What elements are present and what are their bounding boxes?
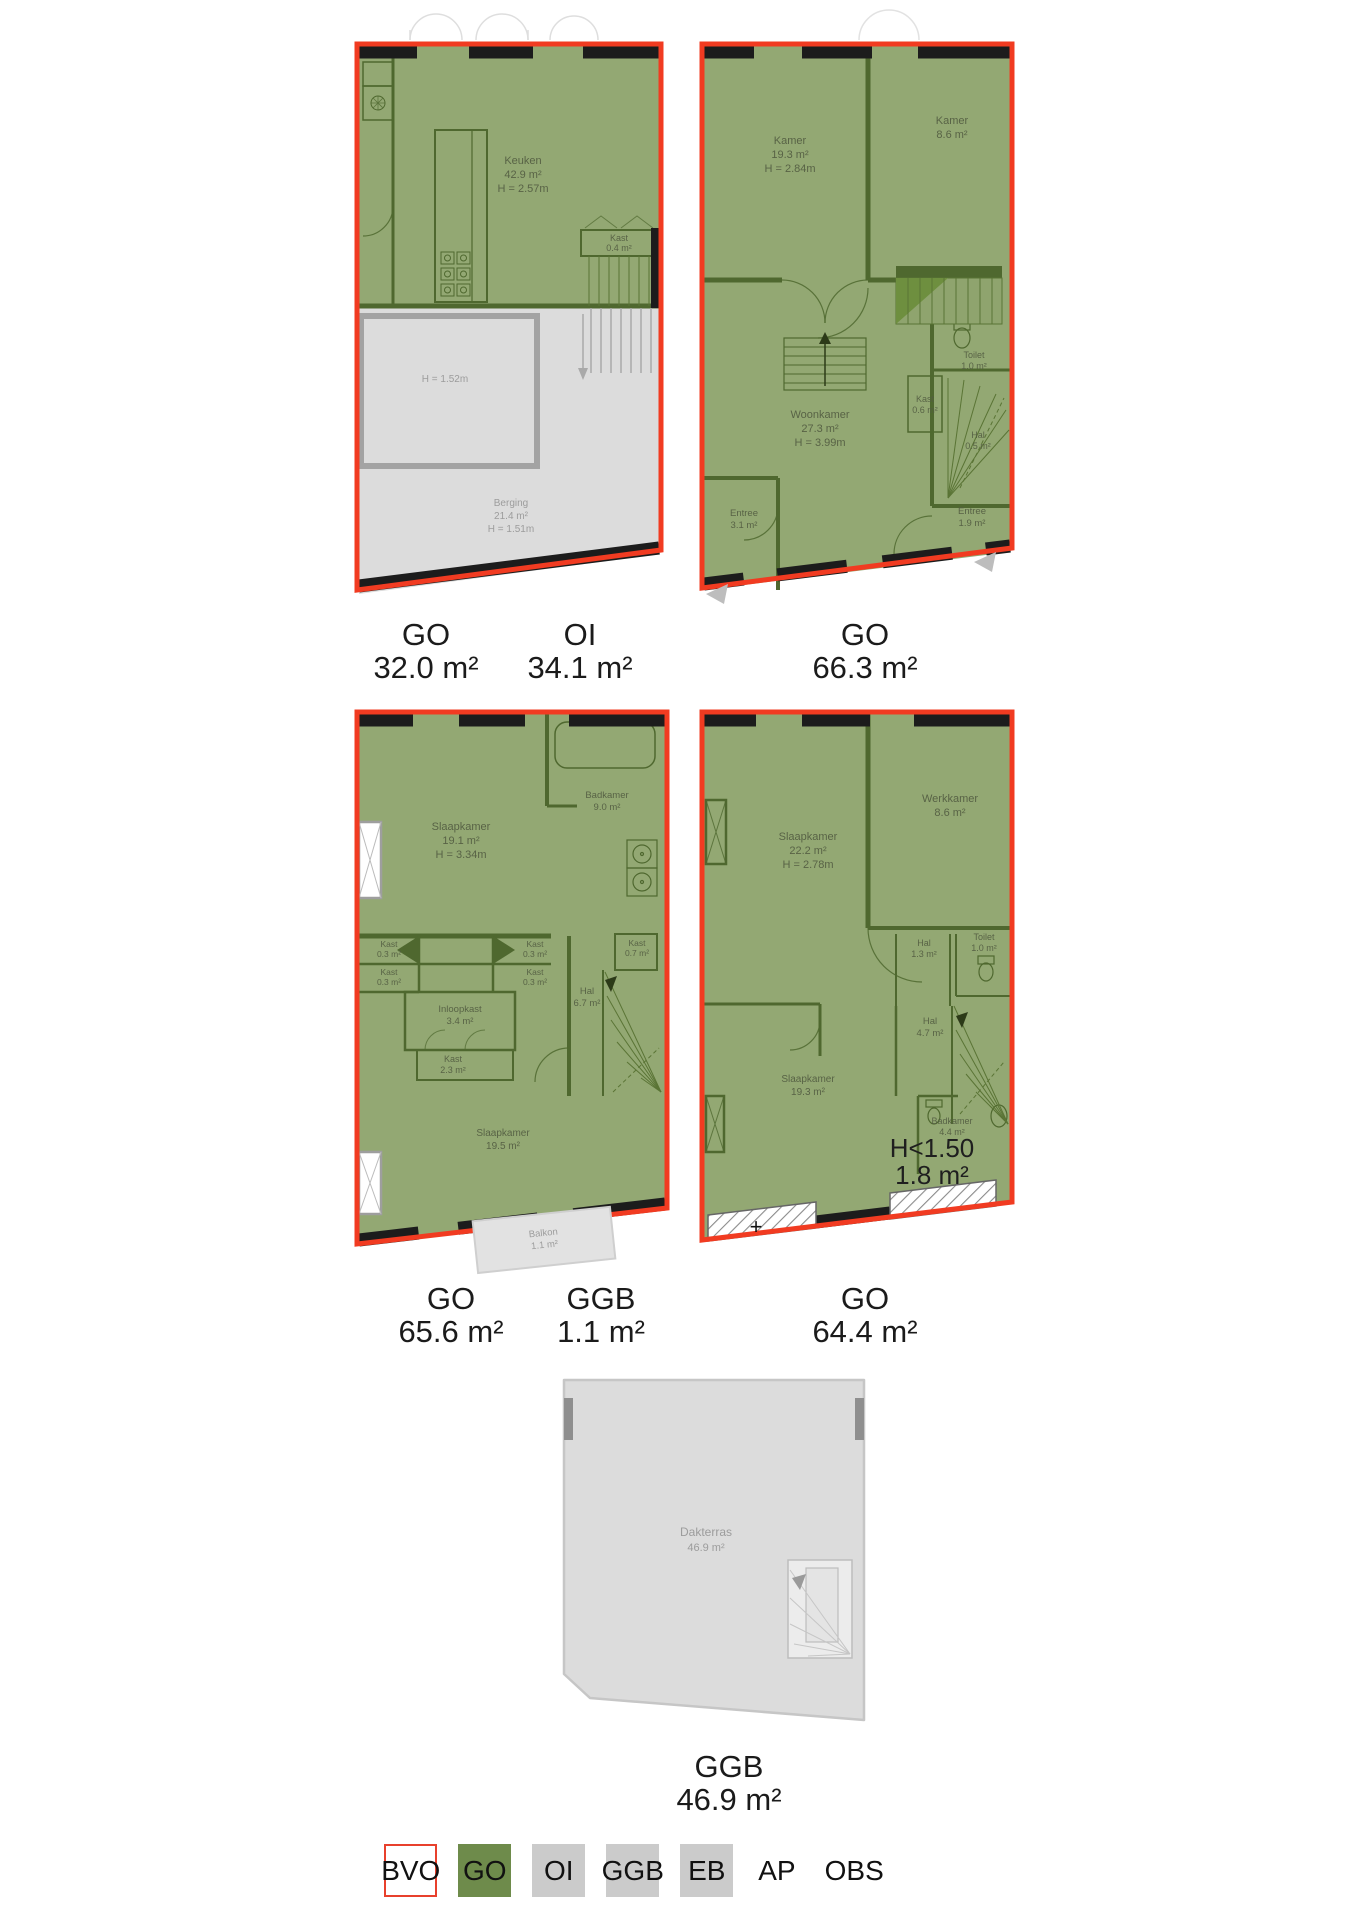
room-label: Hal xyxy=(580,986,594,997)
room-height: H = 3.34m xyxy=(435,849,486,861)
legend-label: OI xyxy=(544,1855,574,1887)
room-label: Dakterras xyxy=(680,1525,732,1539)
room-label: Woonkamer xyxy=(790,409,849,421)
caption-code: OI xyxy=(505,618,655,651)
room-area: 19.3 m² xyxy=(791,1087,826,1098)
caption-go-66: GO 66.3 m² xyxy=(790,618,940,685)
room-label: Slaapkamer xyxy=(779,831,838,843)
room-label: Badkamer xyxy=(931,1116,972,1126)
caption-go-64: GO 64.4 m² xyxy=(790,1282,940,1349)
room-area: 21.4 m² xyxy=(494,511,529,522)
room-label: Hal xyxy=(917,938,931,948)
caption-area: 46.9 m² xyxy=(654,1783,804,1817)
room-label: Kast xyxy=(916,394,935,404)
room-label: Badkamer xyxy=(585,790,628,801)
room-area: 1.9 m² xyxy=(959,518,986,529)
caption-oi-34: OI 34.1 m² xyxy=(505,618,655,685)
room-area: 9.0 m² xyxy=(594,802,621,813)
room-area: 27.3 m² xyxy=(801,423,839,435)
floorplan-sheet: { "colors": { "plan_green": "#93A873", "… xyxy=(0,0,1358,1920)
wall-block xyxy=(855,1398,864,1440)
room-area: 2.3 m² xyxy=(440,1065,466,1075)
room-label: Kast xyxy=(628,938,646,948)
room-label: Kast xyxy=(444,1054,463,1064)
legend-swatch-eb: EB xyxy=(680,1844,733,1897)
legend-swatch-ggb: GGB xyxy=(606,1844,659,1897)
floorplan-5: Dakterras 46.9 m² xyxy=(556,1372,874,1754)
floorplan-1: Keuken 42.9 m² H = 2.57m Kast 0.4 m² H =… xyxy=(353,38,665,606)
room-label: Kamer xyxy=(936,115,969,127)
room-height: H = 2.78m xyxy=(782,859,833,871)
room-area: 19.5 m² xyxy=(486,1141,521,1152)
room-area: 3.1 m² xyxy=(731,520,758,531)
room-label: Werkkamer xyxy=(922,793,978,805)
room-area: 1.3 m² xyxy=(911,949,937,959)
legend-label: GO xyxy=(463,1855,507,1887)
caption-area: 66.3 m² xyxy=(790,651,940,685)
room-area: 19.1 m² xyxy=(442,835,480,847)
room-label: Kast xyxy=(610,233,629,243)
room-area: 42.9 m² xyxy=(504,169,542,181)
room-label: Slaapkamer xyxy=(476,1128,530,1139)
caption-code: GO xyxy=(790,1282,940,1315)
caption-go-32: GO 32.0 m² xyxy=(351,618,501,685)
low-height-area: 1.8 m² xyxy=(895,1160,969,1190)
room-label: Kast xyxy=(380,967,398,977)
room-label: Entree xyxy=(730,508,758,519)
window xyxy=(359,1152,381,1214)
caption-code: GO xyxy=(351,618,501,651)
room-area: 0.3 m² xyxy=(377,949,401,959)
room-label: Slaapkamer xyxy=(432,821,491,833)
wall-block xyxy=(564,1398,573,1440)
room-area: 1.0 m² xyxy=(961,361,987,371)
caption-code: GGB xyxy=(654,1750,804,1783)
window xyxy=(359,822,381,898)
room-label: Berging xyxy=(494,498,528,509)
stair-head-wall xyxy=(896,266,1002,278)
room-area: 4.7 m² xyxy=(917,1028,944,1039)
room-area: 0.3 m² xyxy=(523,949,547,959)
legend-label: BVO xyxy=(381,1855,440,1887)
room-label: Kast xyxy=(526,967,544,977)
room-label: Entree xyxy=(958,506,986,517)
legend-swatch-oi: OI xyxy=(532,1844,585,1897)
room-area: 0.6 m² xyxy=(912,405,938,415)
room-height: H = 3.99m xyxy=(794,437,845,449)
legend-label: AP xyxy=(758,1855,795,1887)
room-label: Hal xyxy=(923,1016,937,1027)
room-label: Keuken xyxy=(504,155,541,167)
room-label: Hal xyxy=(971,430,985,440)
low-height-note: H<1.50 xyxy=(890,1133,975,1163)
room-area: 6.7 m² xyxy=(574,998,601,1009)
floorplan-3: Balkon 1.1 m² Slaapkamer 19.1 m² H = 3.3… xyxy=(353,704,671,1284)
legend-swatch-bvo: BVO xyxy=(384,1844,437,1897)
legend: BVO GO OI GGB EB AP OBS xyxy=(0,1844,1315,1897)
band-right xyxy=(651,228,659,308)
room-label: Kamer xyxy=(774,135,807,147)
caption-area: 1.1 m² xyxy=(526,1315,676,1349)
room-label: Slaapkamer xyxy=(781,1074,835,1085)
plus-mark: + xyxy=(750,1214,763,1239)
room-area: 0.5 m² xyxy=(965,441,991,451)
floorplan-2: Kamer 19.3 m² H = 2.84m Kamer 8.6 m² Woo… xyxy=(698,38,1016,606)
caption-ggb-46: GGB 46.9 m² xyxy=(654,1750,804,1817)
legend-label: OBS xyxy=(825,1855,884,1887)
caption-area: 65.6 m² xyxy=(376,1315,526,1349)
caption-code: GO xyxy=(790,618,940,651)
ghost-outline-strip xyxy=(390,0,660,42)
room-height: H = 2.57m xyxy=(497,183,548,195)
caption-code: GO xyxy=(376,1282,526,1315)
room-area: 8.6 m² xyxy=(936,129,968,141)
caption-area: 34.1 m² xyxy=(505,651,655,685)
caption-go-65: GO 65.6 m² xyxy=(376,1282,526,1349)
room-label: Kast xyxy=(526,939,544,949)
room-height: H = 1.51m xyxy=(488,524,534,535)
caption-area: 32.0 m² xyxy=(351,651,501,685)
legend-swatch-ap: AP xyxy=(754,1844,799,1897)
room-area: 8.6 m² xyxy=(934,807,966,819)
floorplan-4: Slaapkamer 22.2 m² H = 2.78m Werkkamer 8… xyxy=(698,704,1016,1266)
room-area: 19.3 m² xyxy=(771,149,809,161)
room-label: Toilet xyxy=(973,932,995,942)
room-area: 46.9 m² xyxy=(687,1542,725,1554)
room-area: 22.2 m² xyxy=(789,845,827,857)
room-area: 3.4 m² xyxy=(447,1016,474,1027)
caption-area: 64.4 m² xyxy=(790,1315,940,1349)
room-label: Kast xyxy=(380,939,398,949)
caption-ggb-1: GGB 1.1 m² xyxy=(526,1282,676,1349)
room-area: 0.3 m² xyxy=(377,977,401,987)
legend-label: GGB xyxy=(602,1855,664,1887)
legend-swatch-obs: OBS xyxy=(821,1844,888,1897)
legend-swatch-go: GO xyxy=(458,1844,511,1897)
room-area: 0.7 m² xyxy=(625,948,649,958)
room-label: Toilet xyxy=(963,350,985,360)
stairs-top-right xyxy=(896,278,1002,324)
caption-code: GGB xyxy=(526,1282,676,1315)
room-area: 1.0 m² xyxy=(971,943,997,953)
room-area: 0.4 m² xyxy=(606,243,632,253)
zone-height: H = 1.52m xyxy=(422,374,468,385)
room-area: 0.3 m² xyxy=(523,977,547,987)
stairs-outline xyxy=(788,1560,852,1658)
ghost-outline-strip-2 xyxy=(845,0,985,42)
room-height: H = 2.84m xyxy=(764,163,815,175)
room-label: Inloopkast xyxy=(438,1004,482,1015)
legend-label: EB xyxy=(688,1855,725,1887)
